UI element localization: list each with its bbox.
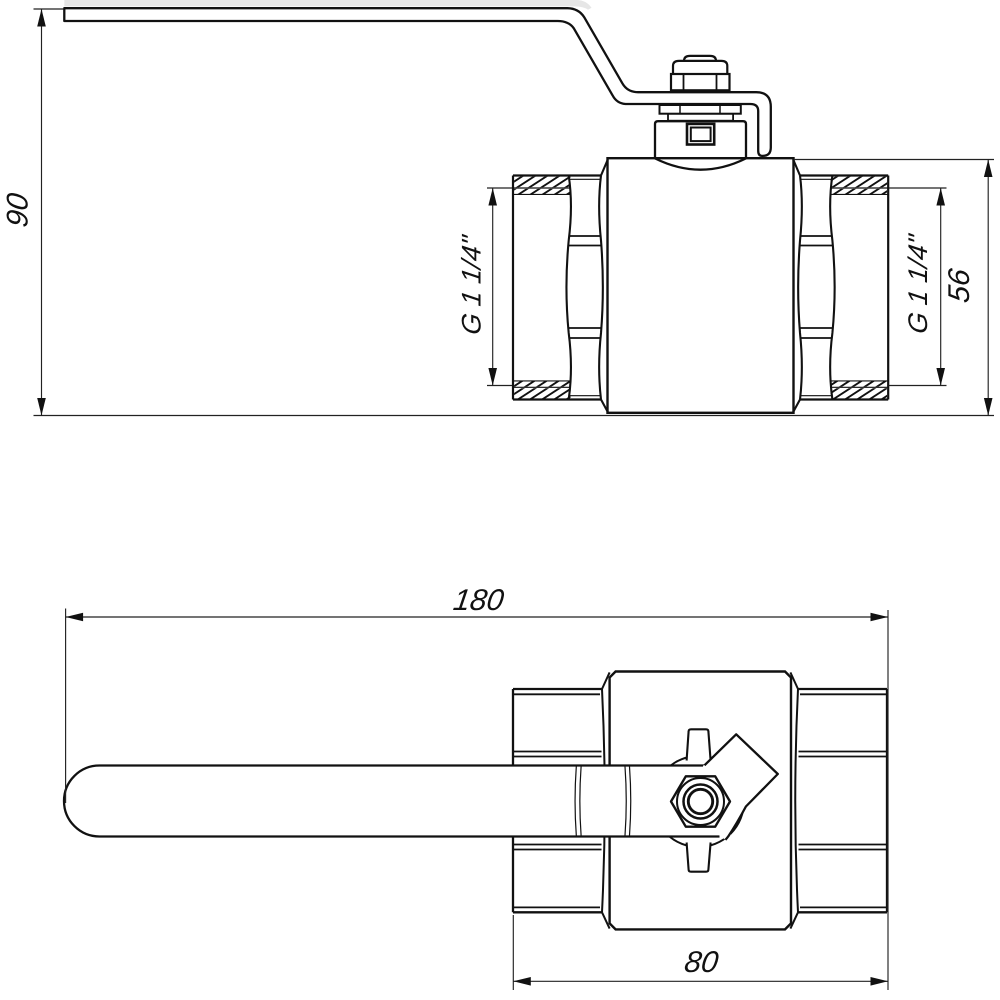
- svg-text:56: 56: [943, 266, 976, 304]
- svg-text:G 1 1/4": G 1 1/4": [457, 233, 487, 337]
- svg-text:90: 90: [2, 191, 35, 229]
- svg-text:180: 180: [451, 584, 506, 617]
- svg-text:80: 80: [682, 946, 720, 979]
- svg-text:G 1 1/4": G 1 1/4": [903, 232, 933, 336]
